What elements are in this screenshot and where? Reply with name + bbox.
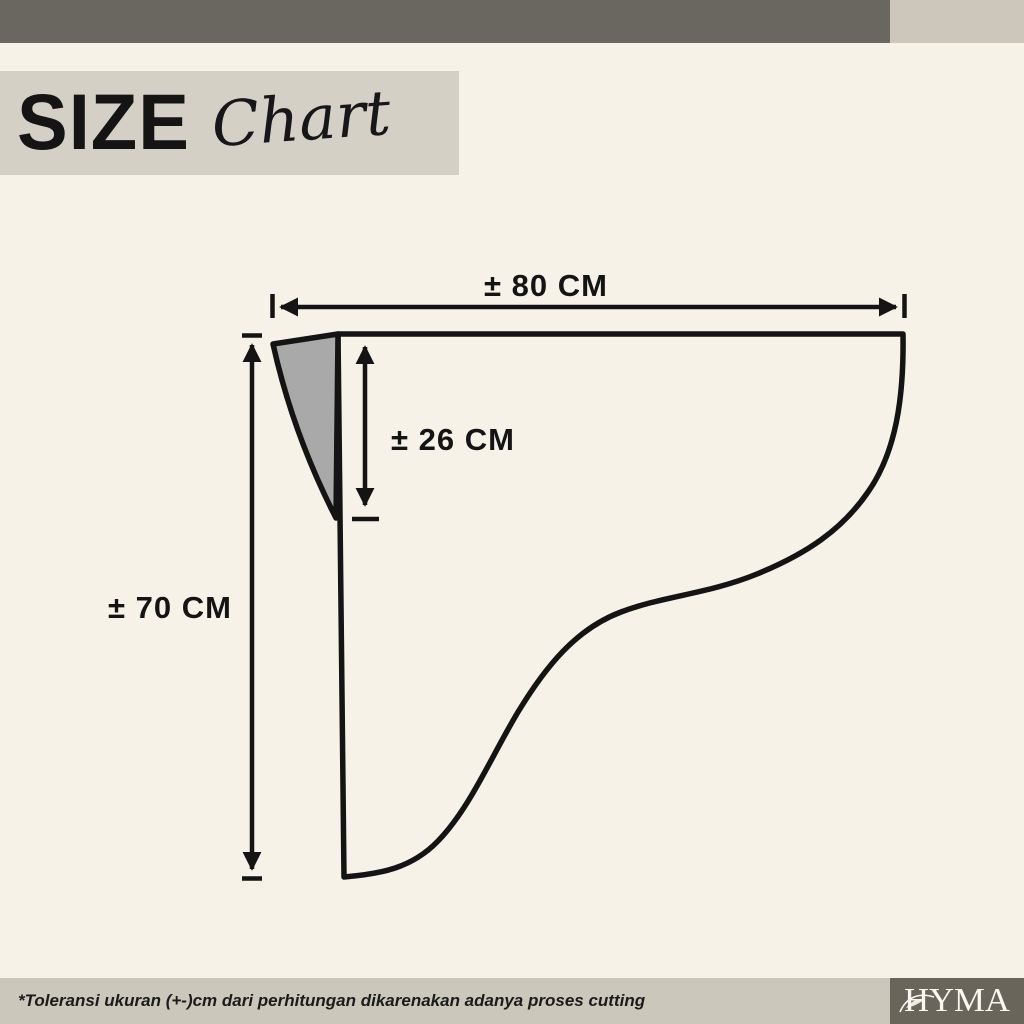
width-dimension-label: ± 80 CM	[484, 268, 608, 303]
tolerance-note: *Toleransi ukuran (+-)cm dari perhitunga…	[18, 991, 645, 1011]
size-chart-page: SIZE Chart ± 80 CM ± 70 CM	[0, 0, 1024, 1024]
height-dimension-label: ± 70 CM	[108, 590, 232, 625]
drop-dimension-label: ± 26 CM	[391, 422, 515, 457]
shape-outline	[338, 334, 903, 877]
brand-leaf-flourish-icon	[898, 984, 938, 1018]
height-dimension-arrow	[242, 336, 262, 879]
footer-bar: *Toleransi ukuran (+-)cm dari perhitunga…	[0, 978, 1024, 1024]
gusset-triangle	[273, 334, 338, 518]
brand-logo-block: HYMA	[890, 978, 1024, 1024]
size-diagram: ± 80 CM ± 70 CM ± 26 CM	[0, 0, 1024, 1024]
